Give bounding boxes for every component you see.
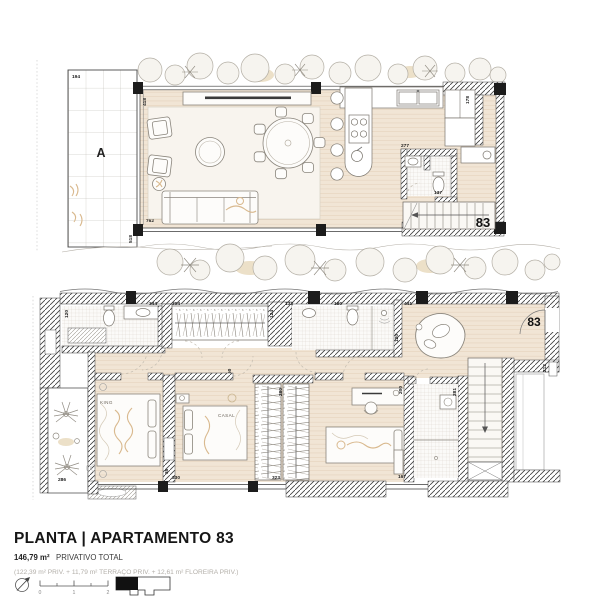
void: [516, 374, 544, 470]
dim-120b: 120: [394, 334, 400, 342]
dim-137: 137: [434, 190, 442, 196]
dim-518: 518: [128, 235, 134, 243]
dim-418: 418: [142, 98, 148, 106]
tall-cabinet: [445, 118, 475, 146]
sofa: [162, 191, 258, 224]
floor-plan-sheet: 194 A 418 762 518: [0, 0, 600, 600]
casal-bed: [183, 406, 247, 460]
dim-286: 286: [58, 477, 66, 483]
upper-plan: 194 A 418 762 518: [37, 53, 560, 282]
coffee-table: [196, 138, 225, 167]
dim-344: 344: [149, 301, 157, 307]
terrace-label: A: [96, 146, 105, 160]
armchair-1: [147, 117, 173, 140]
plan-drawing: 194 A 418 762 518: [0, 0, 600, 600]
scale-tick-0: 0: [39, 590, 42, 596]
scale-tick-2: 2: [107, 590, 110, 596]
scale-tick-1: 1: [73, 590, 76, 596]
key-plan-highlight: [116, 577, 138, 590]
key-plan: [116, 577, 170, 595]
area-total-value: 146,79 m²: [14, 553, 50, 562]
single-bed: [326, 427, 404, 463]
wc-tank: [433, 172, 444, 176]
king-bedroom: KING 35: [87, 384, 171, 478]
cooktop: [349, 115, 369, 143]
stool: [331, 168, 343, 180]
lower-plan: 286 120 344 304 124 133 180 120 4: [33, 289, 560, 500]
bathtub: [68, 328, 106, 343]
dim-281: 281: [452, 388, 458, 396]
scale-bar: 0 1 2: [39, 581, 110, 597]
dresser: [394, 450, 403, 474]
area-breakdown: (122,39 m² PRIV. + 11,79 m² TERRAÇO PRIV…: [14, 569, 238, 576]
tv-console: [183, 92, 311, 105]
dim-200: 200: [398, 386, 404, 394]
sheet-title: PLANTA | APARTAMENTO 83: [14, 530, 234, 547]
wc: [104, 310, 115, 326]
closet-top: 344 304 124: [149, 301, 292, 348]
sink: [303, 309, 316, 318]
wc: [347, 309, 358, 325]
terrace-a: 194 A: [68, 70, 137, 247]
dim-178: 178: [465, 96, 471, 104]
stairs-upper: 83: [403, 202, 495, 230]
dim-167: 167: [398, 474, 406, 480]
stool: [331, 92, 343, 104]
dim-133: 133: [285, 301, 293, 307]
footer: PLANTA | APARTAMENTO 83 146,79 m² PRIVAT…: [14, 530, 238, 596]
armchair-2: [147, 155, 172, 178]
dim-180: 180: [334, 301, 342, 307]
dim-212: 212: [542, 364, 548, 372]
lower-unit-number: 83: [527, 315, 541, 329]
sink: [440, 395, 456, 409]
north-arrow-icon: [16, 577, 31, 592]
dim-124: 124: [269, 310, 275, 318]
dim-323: 323: [272, 475, 280, 481]
area-total-label: PRIVATIVO TOTAL: [56, 553, 124, 562]
lavabo: 277 137: [401, 143, 457, 203]
shower-head: [381, 310, 386, 315]
master-bath: 120: [62, 306, 165, 353]
dim-441: 441: [404, 301, 412, 307]
dim-277: 277: [401, 143, 409, 149]
dim-280: 280: [278, 388, 284, 396]
casal-label: CASAL: [218, 413, 235, 418]
dim-120a: 120: [64, 310, 70, 318]
bath-2: 133 180 120: [285, 300, 402, 357]
dim-330: 330: [172, 475, 180, 481]
desk-chair: [365, 402, 377, 414]
dim-terrace-194: 194: [72, 74, 80, 80]
greenery-top-band: [138, 53, 506, 85]
island-sink: [352, 151, 363, 162]
stool: [331, 118, 343, 130]
stool: [331, 144, 343, 156]
greenery-middle-band: [62, 244, 560, 282]
upper-unit-number: 83: [476, 215, 490, 230]
dim-304: 304: [172, 301, 180, 307]
living-room: [147, 92, 325, 224]
lower-bottom-wall: [88, 481, 508, 497]
dim-35: 35: [164, 468, 170, 474]
floreira-band: [60, 289, 559, 304]
king-label: KING: [100, 400, 113, 405]
